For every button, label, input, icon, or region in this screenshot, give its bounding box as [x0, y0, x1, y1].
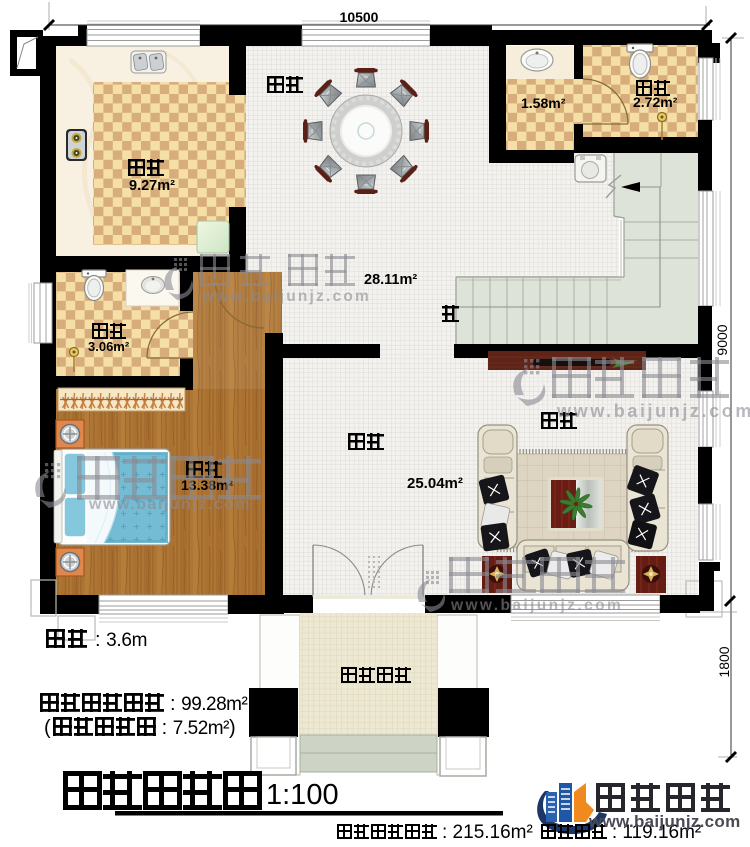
svg-text:10500: 10500 [340, 9, 379, 25]
svg-text:25.04m²: 25.04m² [407, 475, 463, 492]
svg-text:9000: 9000 [714, 324, 730, 355]
svg-text:9.27m²: 9.27m² [129, 178, 175, 194]
svg-text:1:100: 1:100 [266, 779, 339, 811]
svg-text:3.06m²: 3.06m² [88, 339, 130, 354]
svg-text:1.58m²: 1.58m² [521, 95, 566, 111]
svg-text:1800: 1800 [716, 646, 732, 677]
svg-text:28.11m²: 28.11m² [364, 272, 417, 288]
